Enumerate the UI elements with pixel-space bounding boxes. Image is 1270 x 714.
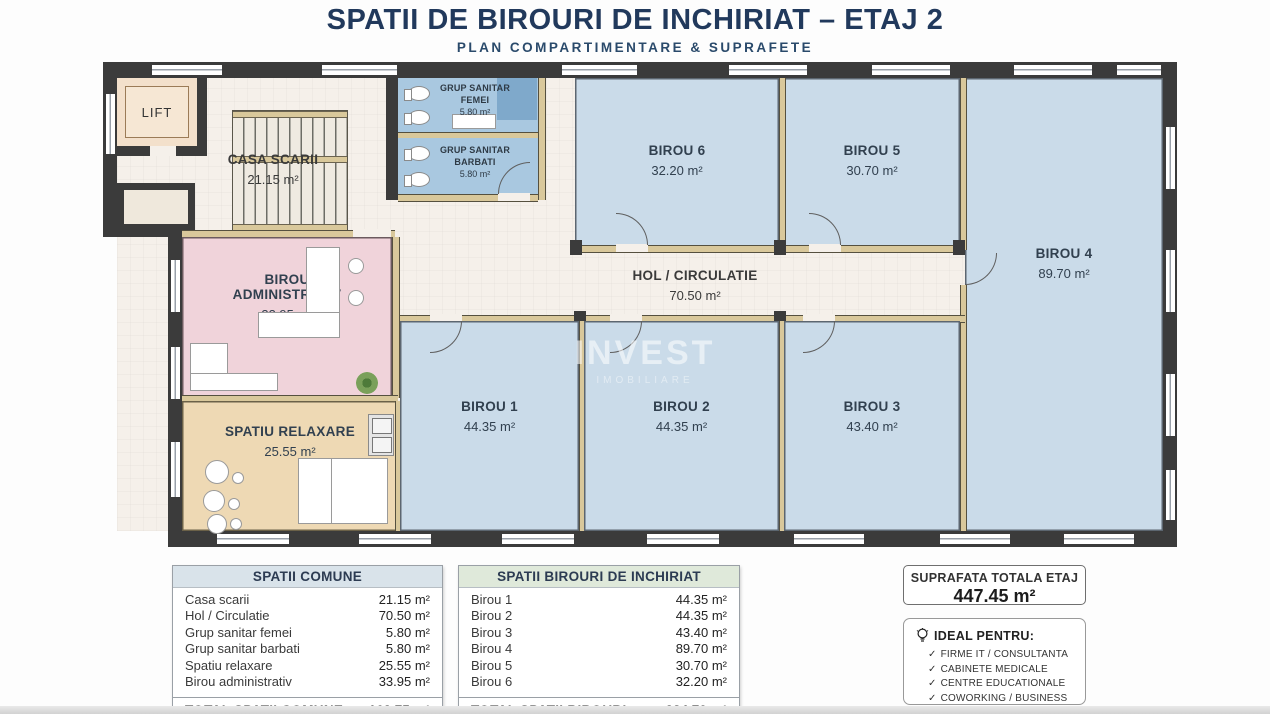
row-value: 21.15 m²: [379, 592, 430, 607]
window-icon: [1166, 248, 1175, 314]
desk-icon: [258, 312, 340, 338]
row-label: Birou 5: [471, 658, 512, 673]
table-row: Grup sanitar femei5.80 m²: [173, 624, 442, 641]
row-label: Grup sanitar femei: [185, 625, 292, 640]
check-icon: ✓: [928, 664, 937, 675]
row-value: 33.95 m²: [379, 674, 430, 689]
window-icon: [215, 534, 291, 544]
table-row: Grup sanitar barbati5.80 m²: [173, 641, 442, 658]
room-name: BARBATI: [412, 156, 538, 168]
table-row: Birou administrativ33.95 m²: [173, 674, 442, 691]
room-name: FEMEI: [412, 94, 538, 106]
row-value: 70.50 m²: [379, 608, 430, 623]
window-icon: [1166, 125, 1175, 191]
window-icon: [1166, 372, 1175, 438]
check-icon: ✓: [928, 693, 937, 704]
room-lift: LIFT: [117, 78, 207, 156]
window-icon: [150, 65, 224, 75]
table-row: Birou 244.35 m²: [459, 608, 739, 625]
wall-office: [960, 78, 967, 250]
ideal-item: ✓CENTRE EDUCATIONALE: [916, 677, 1075, 692]
wall-stub: [953, 240, 965, 255]
wall-stub: [570, 240, 582, 255]
row-label: Hol / Circulatie: [185, 608, 270, 623]
table-header: SPATII BIROURI DE INCHIRIAT: [459, 566, 739, 588]
row-label: Birou 6: [471, 674, 512, 689]
row-value: 5.80 m²: [386, 641, 430, 656]
window-icon: [645, 534, 721, 544]
room-area: 5.80 m²: [412, 168, 538, 180]
table-row: Birou 530.70 m²: [459, 657, 739, 674]
window-icon: [727, 65, 809, 75]
window-icon: [500, 534, 576, 544]
table-row: Hol / Circulatie70.50 m²: [173, 608, 442, 625]
window-icon: [357, 534, 433, 544]
window-icon: [171, 258, 180, 314]
room-area: 21.15 m²: [173, 172, 373, 187]
door-gap: [498, 193, 530, 201]
table-spatii-birouri: SPATII BIROURI DE INCHIRIAT Birou 144.35…: [458, 565, 740, 714]
room-area: 89.70 m²: [965, 266, 1163, 281]
room-name: BIROU 2: [584, 399, 779, 414]
floor-plan-page: SPATII DE BIROURI DE INCHIRIAT – ETAJ 2 …: [0, 0, 1270, 714]
wall-office: [779, 78, 786, 250]
table-header: SPATII COMUNE: [173, 566, 442, 588]
room-name: BIROU 3: [784, 399, 960, 414]
chair-icon: [348, 258, 364, 274]
room-birou-6: BIROU 6 32.20 m²: [575, 78, 779, 250]
room-name: BIROU 6: [575, 143, 779, 158]
chair-icon: [228, 498, 240, 510]
ideal-item-text: CENTRE EDUCATIONALE: [941, 678, 1066, 689]
window-icon: [870, 65, 952, 75]
room-birou-3: BIROU 3 43.40 m²: [784, 321, 960, 531]
window-icon: [560, 65, 639, 75]
total-floor-area-box: SUPRAFATA TOTALA ETAJ 447.45 m²: [903, 565, 1086, 605]
table-icon: [203, 490, 225, 512]
wall-stub: [774, 240, 786, 255]
window-icon: [938, 534, 1012, 544]
ideal-item-text: FIRME IT / CONSULTANTA: [941, 649, 1069, 660]
check-icon: ✓: [928, 678, 937, 689]
table-row: Spatiu relaxare25.55 m²: [173, 657, 442, 674]
row-value: 32.20 m²: [676, 674, 727, 689]
ideal-pentru-header: IDEAL PENTRU:: [916, 628, 1075, 644]
room-area: 44.35 m²: [400, 419, 579, 434]
room-area: 30.70 m²: [784, 163, 960, 178]
plant-icon: [356, 372, 378, 394]
row-label: Birou 3: [471, 625, 512, 640]
ideal-item: ✓CABINETE MEDICALE: [916, 663, 1075, 678]
room-birou-4: BIROU 4 89.70 m²: [965, 78, 1163, 531]
table-row: Birou 343.40 m²: [459, 624, 739, 641]
ideal-item: ✓FIRME IT / CONSULTANTA: [916, 648, 1075, 663]
room-birou-1: BIROU 1 44.35 m²: [400, 321, 579, 531]
window-icon: [1166, 468, 1175, 522]
room-storage: [117, 183, 195, 231]
door-gap: [616, 244, 648, 252]
chair-icon: [232, 472, 244, 484]
row-value: 89.70 m²: [676, 641, 727, 656]
row-label: Spatiu relaxare: [185, 658, 272, 673]
room-name: CASA SCARII: [173, 152, 373, 167]
window-icon: [1012, 65, 1094, 75]
row-label: Birou administrativ: [185, 674, 292, 689]
ideal-pentru-title: IDEAL PENTRU:: [934, 629, 1034, 643]
room-area: 44.35 m²: [584, 419, 779, 434]
lightbulb-icon: [916, 628, 929, 644]
table-row: Birou 632.20 m²: [459, 674, 739, 691]
window-icon: [171, 345, 180, 401]
room-name: HOL / CIRCULATIE: [585, 268, 805, 283]
row-value: 43.40 m²: [676, 625, 727, 640]
row-value: 5.80 m²: [386, 625, 430, 640]
row-label: Grup sanitar barbati: [185, 641, 300, 656]
room-name: BIROU 5: [784, 143, 960, 158]
table-row: Birou 144.35 m²: [459, 591, 739, 608]
row-label: Casa scarii: [185, 592, 249, 607]
room-name: BIROU 1: [400, 399, 579, 414]
total-area-title: SUPRAFATA TOTALA ETAJ: [904, 571, 1085, 585]
row-value: 30.70 m²: [676, 658, 727, 673]
window-icon: [320, 65, 399, 75]
chair-icon: [348, 290, 364, 306]
table-row: Casa scarii21.15 m²: [173, 591, 442, 608]
table-spatii-comune: SPATII COMUNE Casa scarii21.15 m² Hol / …: [172, 565, 443, 714]
row-label: Birou 4: [471, 641, 512, 656]
room-name: GRUP SANITAR: [412, 144, 538, 156]
fridge-icon: [368, 414, 394, 456]
wall-bath-right: [538, 78, 546, 200]
lift-label: LIFT: [125, 86, 189, 138]
window-icon: [171, 440, 180, 499]
wall-bath-left: [386, 78, 398, 200]
chair-icon: [230, 518, 242, 530]
row-value: 44.35 m²: [676, 608, 727, 623]
room-area: 32.20 m²: [575, 163, 779, 178]
ideal-pentru-box: IDEAL PENTRU: ✓FIRME IT / CONSULTANTA ✓C…: [903, 618, 1086, 705]
window-icon: [792, 534, 866, 544]
room-name: SPATIU RELAXARE: [182, 424, 398, 439]
table-icon: [205, 460, 229, 484]
ideal-item-text: CABINETE MEDICALE: [941, 664, 1048, 675]
table-row: Birou 489.70 m²: [459, 641, 739, 658]
row-value: 44.35 m²: [676, 592, 727, 607]
room-area: 70.50 m²: [585, 288, 805, 303]
wall-admin-right: [392, 237, 400, 398]
kitchen-counter-icon: [298, 458, 332, 524]
room-casa-scarii-label: CASA SCARII 21.15 m²: [173, 152, 373, 187]
row-label: Birou 2: [471, 608, 512, 623]
table-icon: [207, 514, 227, 534]
room-barbati-label: GRUP SANITAR BARBATI 5.80 m²: [412, 144, 538, 180]
sofa-icon: [190, 373, 278, 391]
check-icon: ✓: [928, 649, 937, 660]
room-name: GRUP SANITAR: [412, 82, 538, 94]
bottom-shadow-band: [0, 706, 1270, 714]
window-icon: [106, 92, 115, 156]
row-value: 25.55 m²: [379, 658, 430, 673]
room-femei-label: GRUP SANITAR FEMEI 5.80 m²: [412, 82, 538, 118]
desk-icon: [306, 247, 340, 317]
floor-plan: LIFT CASA SCARII 21.15 m²: [0, 0, 1270, 560]
room-name: BIROU: [182, 272, 392, 287]
door-gap: [809, 244, 841, 252]
room-area: 5.80 m²: [412, 106, 538, 118]
row-label: Birou 1: [471, 592, 512, 607]
room-area: 43.40 m²: [784, 419, 960, 434]
room-hol-label: HOL / CIRCULATIE 70.50 m²: [585, 268, 805, 303]
total-area-value: 447.45 m²: [904, 586, 1085, 607]
window-icon: [1062, 534, 1136, 544]
window-icon: [1115, 65, 1163, 75]
